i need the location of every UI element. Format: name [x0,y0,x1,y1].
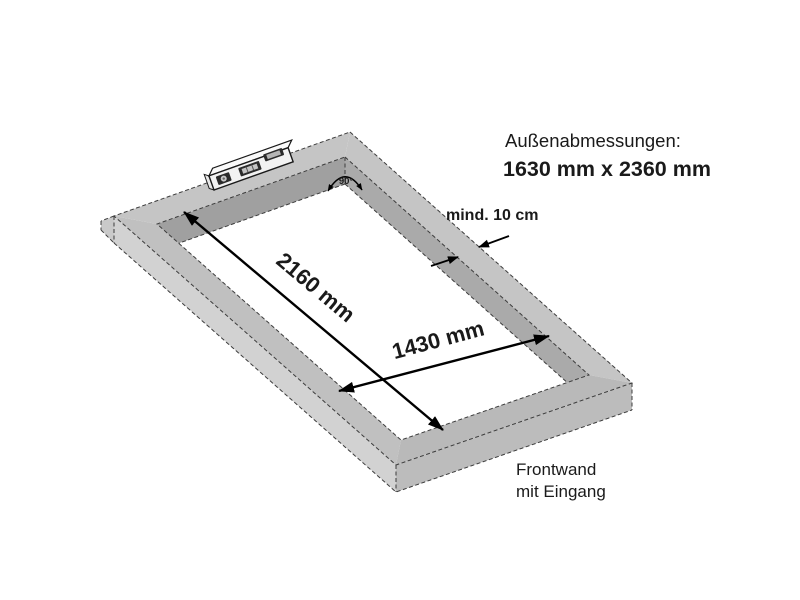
outer-dimensions-value: 1630 mm x 2360 mm [503,157,711,181]
diagram-canvas: 90° 2160 mm 1430 mm mind. 10 cm Außenabm… [0,0,800,600]
front-wall-label: Frontwand mit Eingang [516,460,606,501]
frame-inner-face-right [345,157,589,402]
front-wall-line1: Frontwand [516,460,596,479]
angle-label: 90° [339,176,354,187]
min-width-arrow-outer [479,236,509,247]
frame-3d [101,132,632,492]
min-width-label: mind. 10 cm [446,207,538,224]
outer-dimensions-label: Außenabmessungen: 1630 mm x 2360 mm [503,130,711,181]
foundation-frame-diagram: 90° 2160 mm 1430 mm mind. 10 cm Außenabm… [0,0,800,600]
outer-dimensions-caption: Außenabmessungen: [505,130,681,151]
dimension-2160-label: 2160 mm [272,247,360,327]
frame-top-face-lower-left [114,216,401,465]
front-wall-line2: mit Eingang [516,482,606,501]
frame-corner-cap-left [101,216,114,243]
